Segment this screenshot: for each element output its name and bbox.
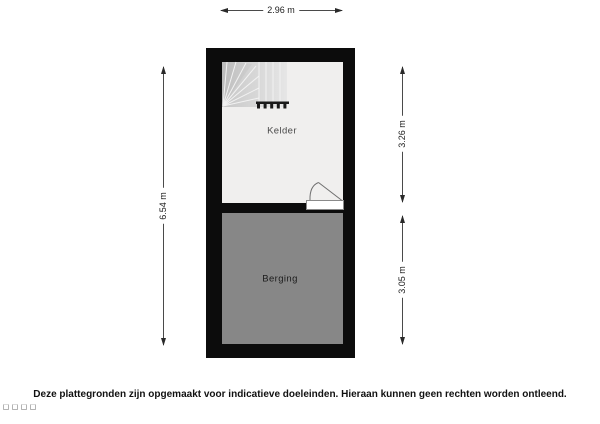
floorplan-page: Kelder Berging [0, 0, 600, 424]
room-label-kelder: Kelder [267, 126, 297, 137]
watermark-mark [21, 404, 27, 410]
watermark-mark [12, 404, 18, 410]
dimension-label-total-height: 6.54 m [157, 188, 169, 224]
room-label-berging: Berging [262, 274, 298, 285]
dimension-label-kelder-height: 3.26 m [396, 116, 408, 152]
interior-wall [222, 203, 308, 213]
disclaimer-text: Deze plattegronden zijn opgemaakt voor i… [0, 389, 600, 400]
watermark-mark [30, 404, 36, 410]
dimension-label-berging-height: 3.05 m [396, 262, 408, 298]
door-leaf [306, 200, 344, 210]
watermark-mark [3, 404, 9, 410]
dimension-label-width: 2.96 m [263, 4, 299, 16]
watermark-logo [3, 404, 36, 410]
